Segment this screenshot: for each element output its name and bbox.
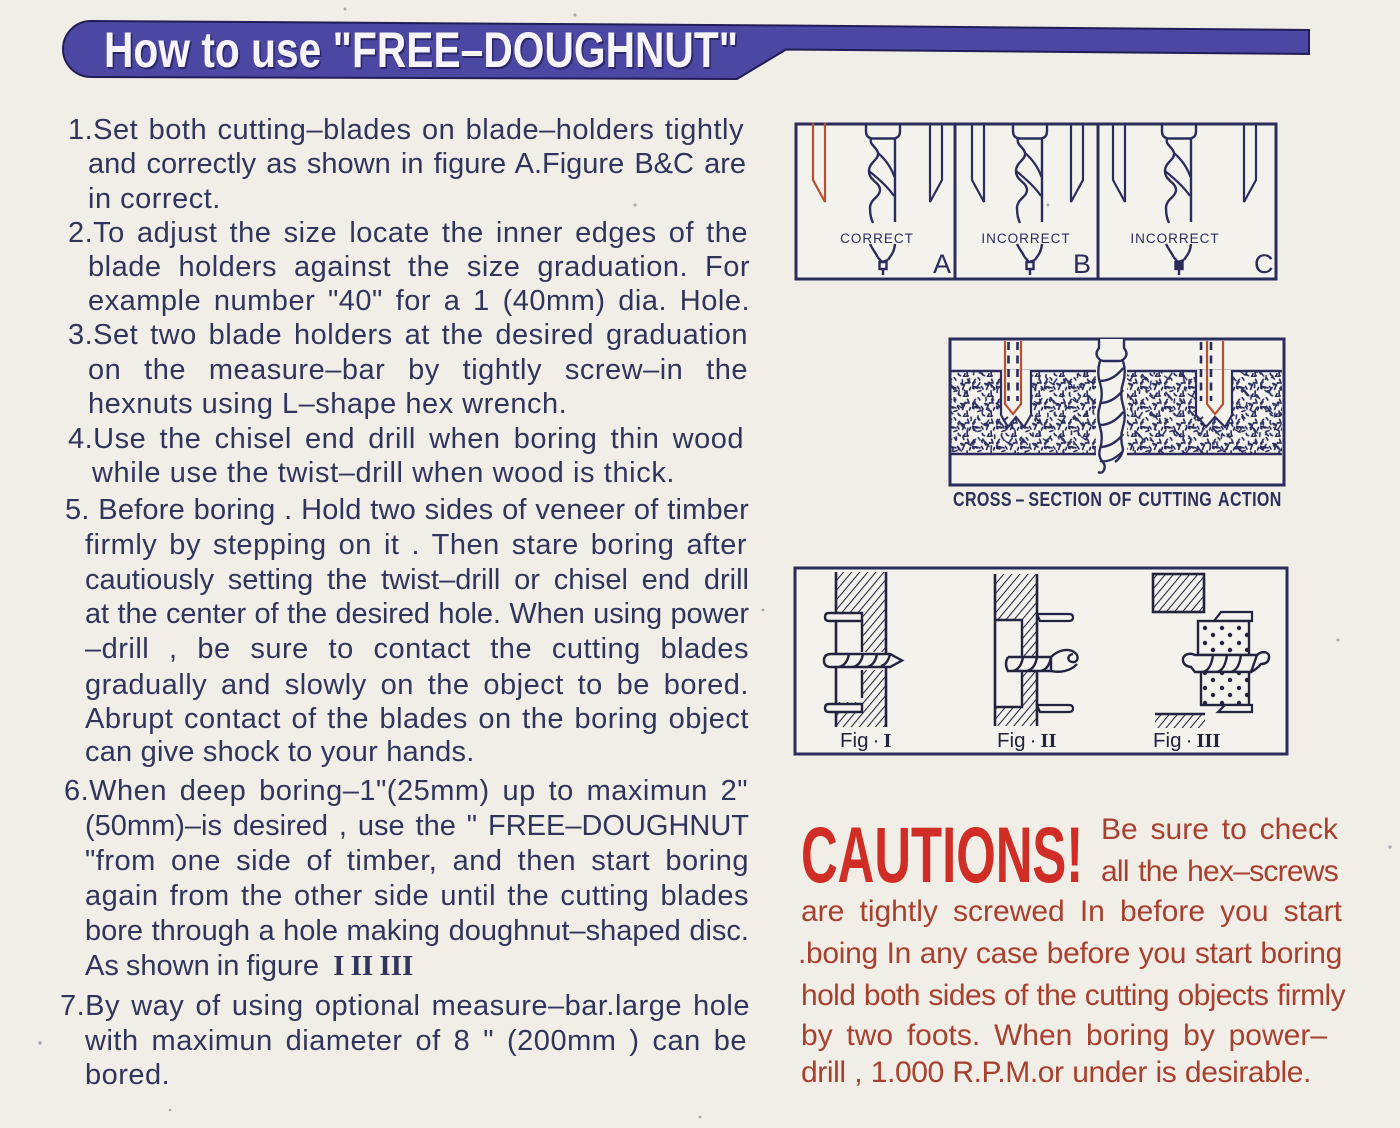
svg-text:Fig · I: Fig · I xyxy=(840,729,892,752)
svg-text:INCORRECT: INCORRECT xyxy=(981,231,1070,246)
svg-text:B: B xyxy=(1073,249,1091,279)
svg-text:CORRECT: CORRECT xyxy=(840,231,914,246)
svg-text:Fig · II: Fig · II xyxy=(997,729,1056,752)
svg-text:C: C xyxy=(1254,249,1274,279)
svg-text:A: A xyxy=(933,249,951,279)
svg-text:Fig · III: Fig · III xyxy=(1153,729,1220,752)
svg-text:INCORRECT: INCORRECT xyxy=(1130,231,1219,246)
